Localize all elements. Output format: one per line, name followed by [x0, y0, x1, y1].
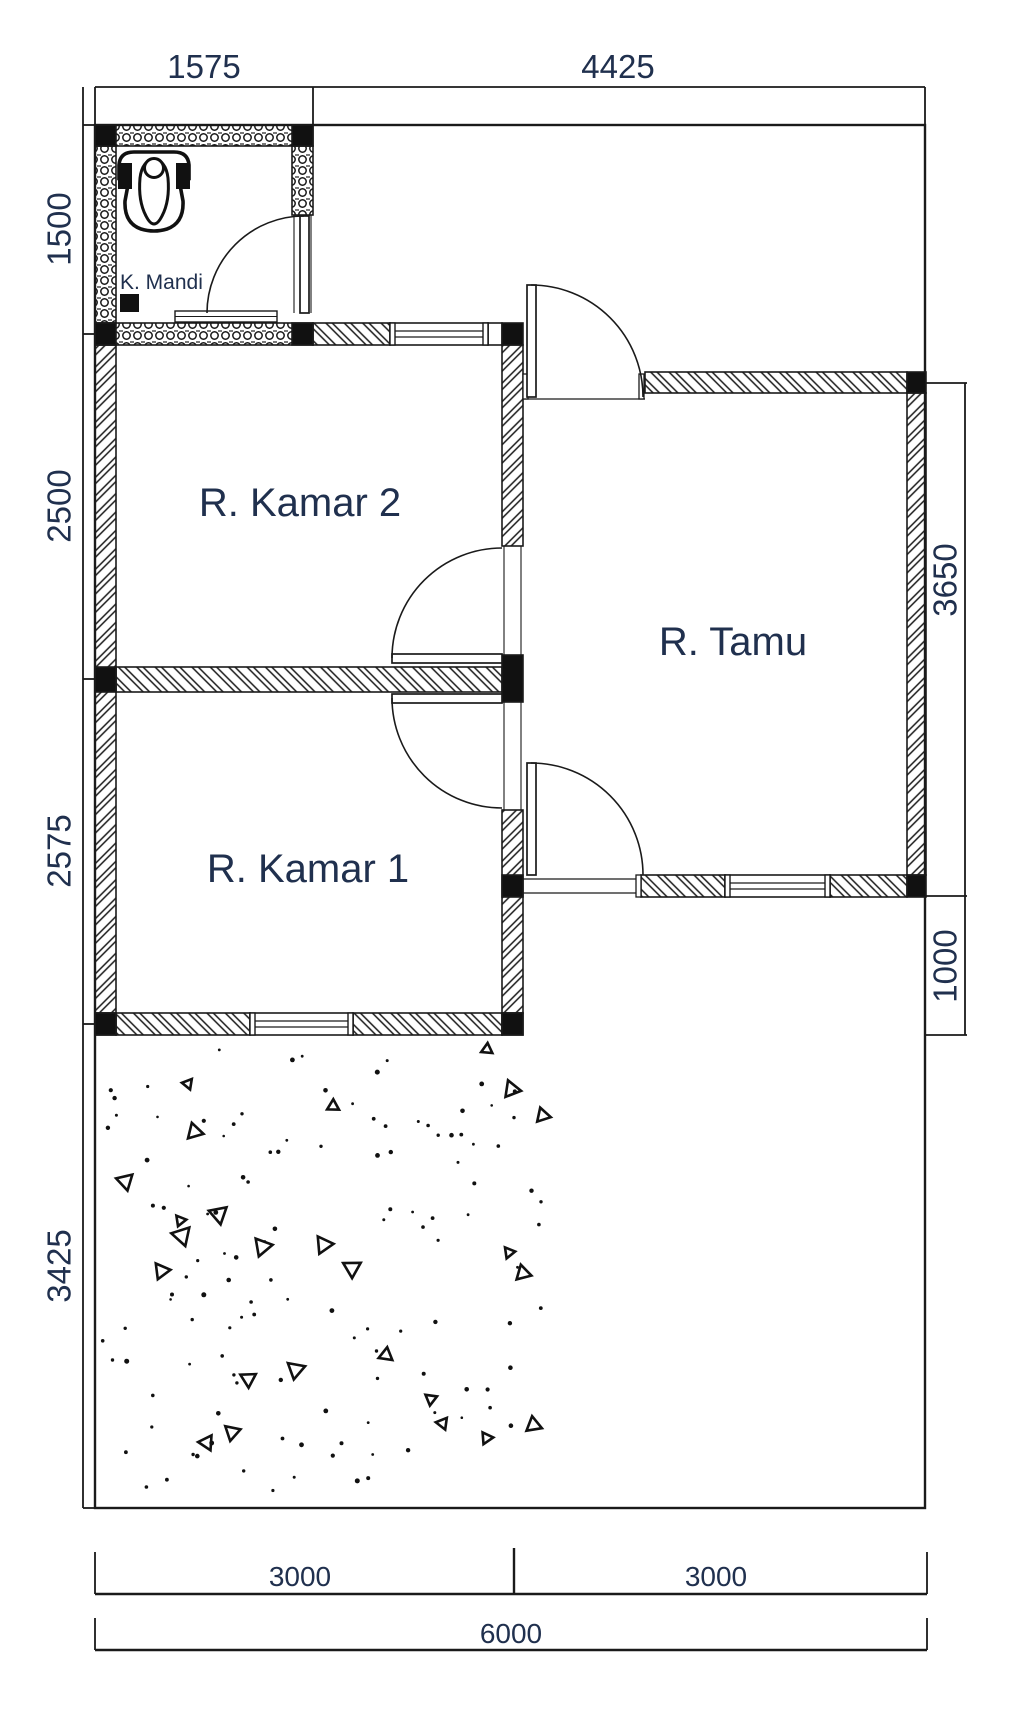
dim-right-3650: 3650 [927, 543, 964, 616]
dim-left-2575: 2575 [41, 814, 78, 887]
room-label-bedroom2: R. Kamar 2 [199, 481, 401, 525]
dim-bottom-6000: 6000 [480, 1618, 542, 1649]
east-exterior-wall [907, 393, 926, 875]
west-exterior-wall [95, 345, 116, 1035]
dim-right-1000: 1000 [927, 929, 964, 1002]
door-bedroom2 [392, 546, 521, 663]
gravel-stipple [101, 1043, 551, 1492]
room-labels: K. Mandi R. Kamar 2 R. Kamar 1 R. Tamu [120, 271, 807, 891]
window-bedroom1-south [250, 1013, 353, 1035]
toilet-drain [145, 159, 164, 178]
window-bathroom [175, 311, 277, 322]
door-entry-north [523, 285, 645, 399]
bathroom-floor-drain [120, 294, 139, 312]
dim-bottom-left-3000: 3000 [269, 1561, 331, 1592]
door-bathroom [207, 215, 311, 313]
floor-plan-drawing: 1575 4425 1500 2500 2575 3425 3650 1000 … [0, 0, 1024, 1723]
walls [95, 125, 926, 1035]
window-living-south [725, 875, 830, 897]
room-label-bathroom: K. Mandi [120, 271, 203, 294]
door-living-south [523, 763, 643, 897]
dim-left-1500: 1500 [41, 192, 78, 265]
living-north-wall [645, 372, 926, 393]
toilet-icon [118, 152, 190, 231]
window-bedroom2-north [390, 323, 488, 345]
toilet-foot-pad-left [118, 163, 132, 189]
room-label-living: R. Tamu [659, 620, 807, 664]
toilet-foot-pad-right [176, 163, 190, 189]
room-label-bedroom1: R. Kamar 1 [207, 847, 409, 891]
dim-top-right: 4425 [581, 48, 654, 85]
dim-left-3425: 3425 [41, 1229, 78, 1302]
dim-top-left: 1575 [167, 48, 240, 85]
floor-plan-page: 1575 4425 1500 2500 2575 3425 3650 1000 … [0, 0, 1024, 1723]
door-bedroom1 [392, 694, 521, 810]
dim-left-2500: 2500 [41, 469, 78, 542]
dim-bottom-right-3000: 3000 [685, 1561, 747, 1592]
